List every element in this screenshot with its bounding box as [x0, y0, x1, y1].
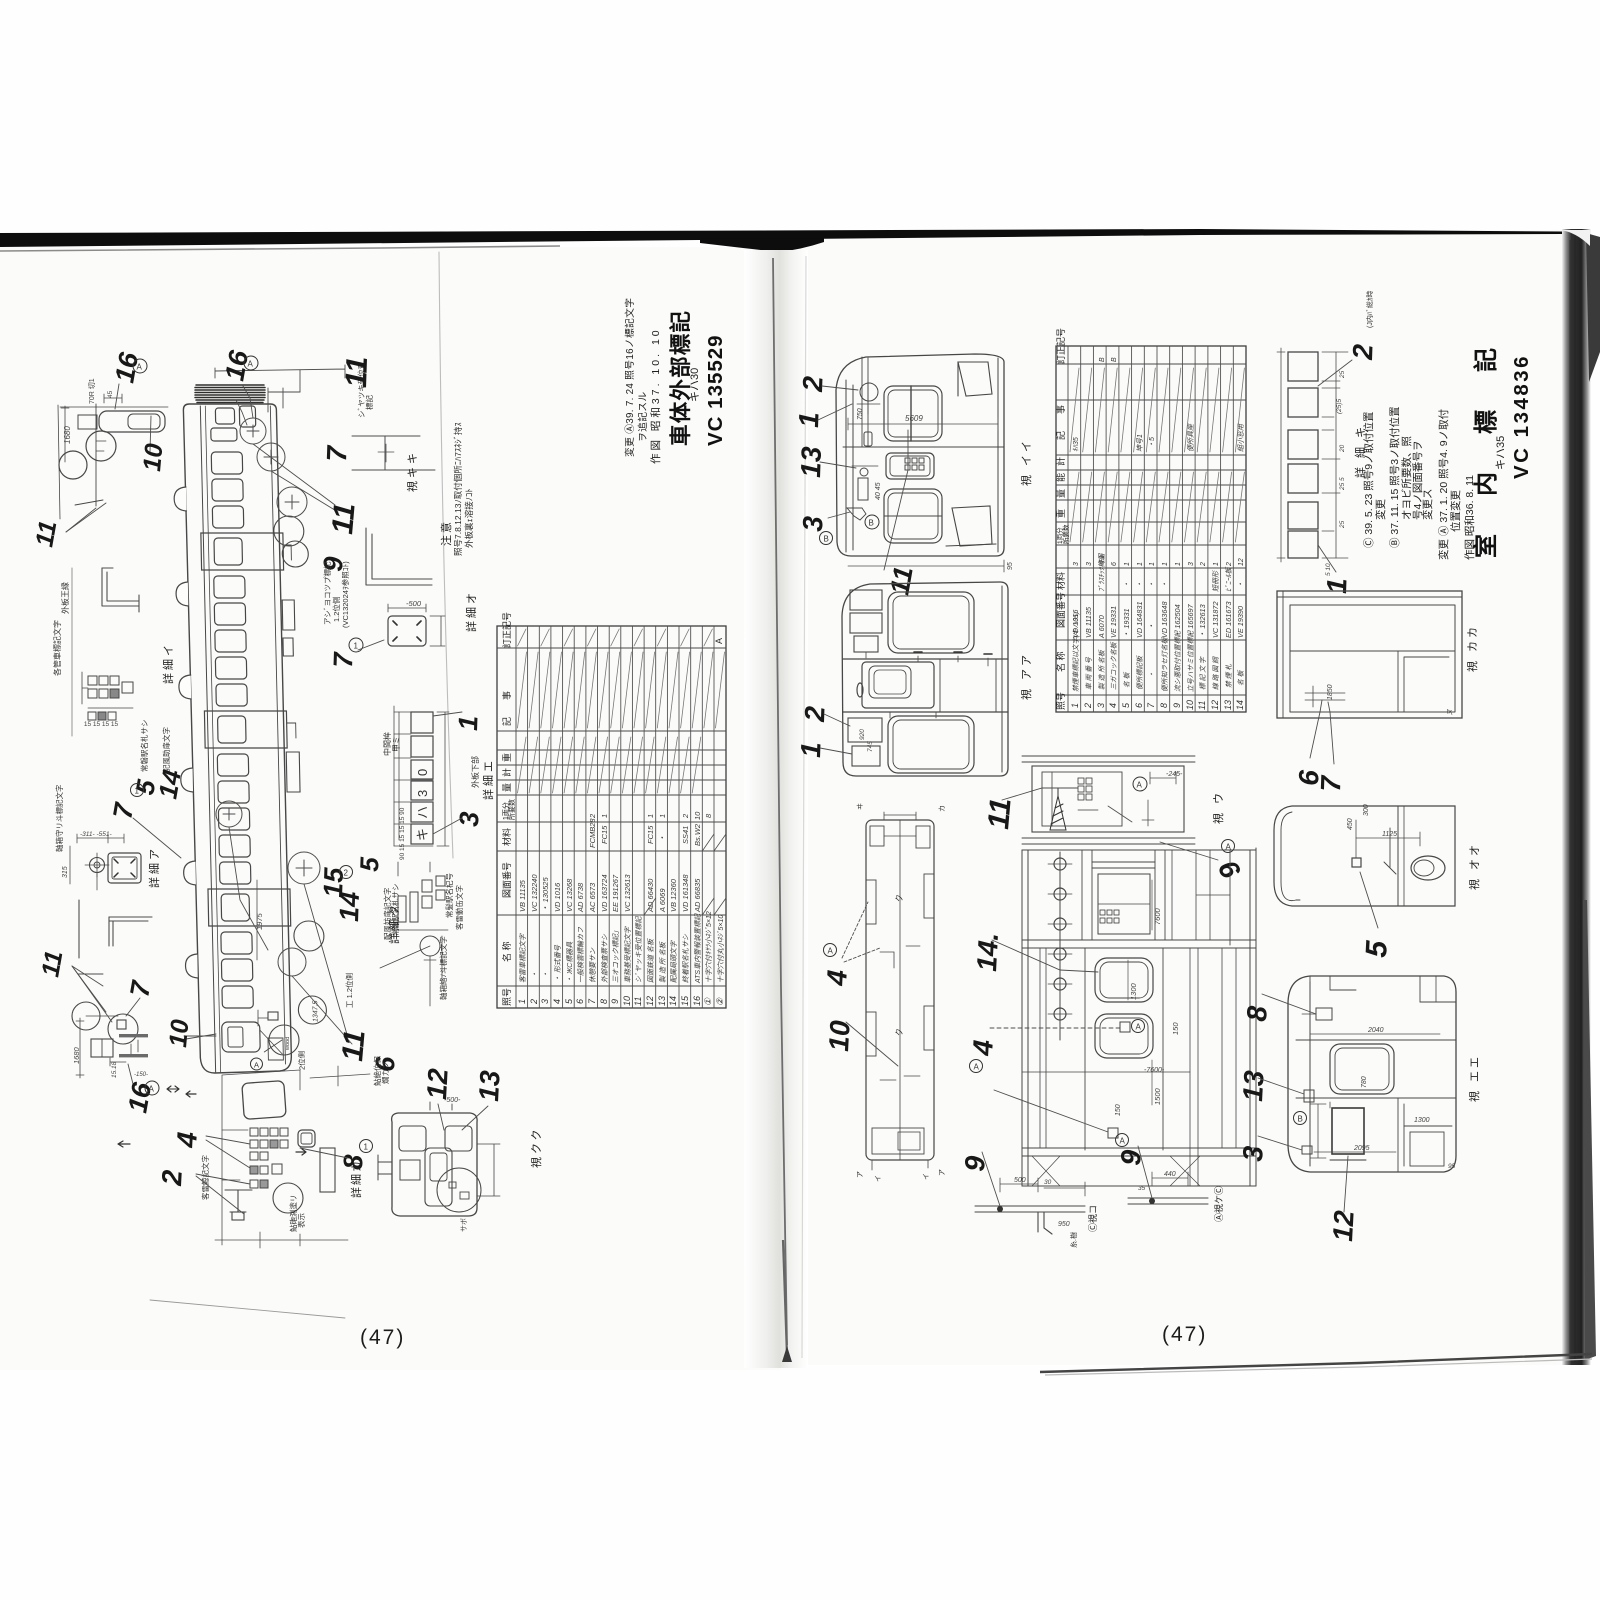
svg-text:A: A	[714, 638, 724, 644]
svg-text:A: A	[974, 1063, 980, 1072]
svg-text:5609: 5609	[905, 414, 923, 423]
svg-text:中間桙: 中間桙	[382, 732, 392, 756]
svg-text:量: 量	[1056, 489, 1066, 498]
svg-text:VB 11135: VB 11135	[1084, 606, 1093, 638]
svg-text:重: 重	[1055, 509, 1066, 518]
svg-text:・: ・	[658, 835, 667, 843]
svg-text:イ: イ	[875, 1175, 882, 1182]
svg-text:・ 形式番号: ・ 形式番号	[554, 944, 562, 982]
svg-text:三オコック標記」: 三オコック標記」	[612, 927, 620, 983]
svg-text:所要数: 所要数	[1061, 524, 1070, 544]
svg-text:・: ・	[1149, 671, 1156, 678]
svg-text:4: 4	[821, 969, 853, 988]
svg-text:記風助扉文字: 記風助扉文字	[161, 727, 171, 772]
svg-text:車務基受標記文字: 車務基受標記文字	[624, 926, 632, 983]
svg-text:7: 7	[321, 444, 353, 462]
svg-text:(J内ﾊﾞ総ｶ時: (J内ﾊﾞ総ｶ時	[1365, 291, 1374, 328]
svg-text:440: 440	[1164, 1171, 1176, 1178]
svg-text:イ: イ	[923, 1173, 930, 1180]
svg-text:13: 13	[1223, 700, 1233, 710]
svg-text:-150-: -150-	[134, 1072, 148, 1078]
svg-text:ﾋﾞﾆｰﾙ板: ﾋﾞﾆｰﾙ板	[1225, 567, 1233, 592]
svg-text:2: 2	[588, 813, 597, 819]
svg-text:・ 19331: ・ 19331	[1122, 608, 1131, 638]
svg-text:VC 135529: VC 135529	[704, 334, 727, 446]
svg-text:②: ②	[715, 997, 725, 1006]
svg-text:2: 2	[1200, 562, 1207, 567]
svg-text:変更ス: 変更ス	[1421, 489, 1434, 521]
svg-text:Ⓐ視ケⒸ: Ⓐ視ケⒸ	[1213, 1186, 1224, 1222]
svg-text:ヌ: ヌ	[1447, 709, 1454, 716]
svg-text:照号7.8.12.13ﾉ取付個所ﾆﾊ7ｽﾈｼﾞ持ｽ: 照号7.8.12.13ﾉ取付個所ﾆﾊ7ｽﾈｼﾞ持ｽ	[453, 422, 463, 556]
svg-text:A: A	[1136, 1023, 1142, 1032]
svg-text:十字穴付ｷｻﾗ小ﾈｼﾞ5×12: 十字穴付ｷｻﾗ小ﾈｼﾞ5×12	[705, 911, 713, 983]
svg-text:客雷鯨記文字: 客雷鯨記文字	[200, 1155, 210, 1200]
svg-text:VE 19331: VE 19331	[1109, 606, 1118, 638]
svg-text:1: 1	[453, 715, 484, 731]
svg-text:14: 14	[668, 996, 678, 1006]
svg-text:3: 3	[1096, 703, 1106, 708]
svg-text:2: 2	[799, 705, 831, 723]
svg-text:アシﾞヨコツプ標記: アシﾞヨコツプ標記	[322, 561, 332, 625]
svg-text:十字穴付丸小ﾈｼﾞ5×10: 十字穴付丸小ﾈｼﾞ5×10	[717, 915, 725, 983]
svg-text:1: 1	[1137, 562, 1144, 566]
svg-text:3: 3	[415, 790, 430, 797]
svg-text:Ⓒ視コ: Ⓒ視コ	[1087, 1205, 1098, 1232]
svg-text:事: 事	[1055, 405, 1066, 414]
svg-text:1: 1	[517, 999, 527, 1004]
svg-text:FCMB28: FCMB28	[588, 818, 597, 848]
svg-text:15: 15	[680, 995, 690, 1006]
svg-text:客雷車標記文字: 客雷車標記文字	[519, 933, 527, 983]
svg-text:軸箱守リ斗標記文字: 軸箱守リ斗標記文字	[54, 785, 64, 853]
svg-text:配属局頭文字: 配属局頭文字	[670, 940, 678, 983]
svg-text:5: 5	[1360, 939, 1394, 959]
svg-text:1975: 1975	[255, 912, 264, 930]
svg-text:訂正記号: 訂正記号	[1055, 328, 1066, 364]
svg-text:表示: 表示	[296, 1213, 306, 1229]
svg-text:ク: ク	[895, 894, 904, 902]
svg-text:745: 745	[867, 741, 874, 752]
svg-text:-7600-: -7600-	[1144, 1067, 1165, 1074]
svg-text:2: 2	[1226, 562, 1233, 567]
svg-text:A: A	[137, 363, 143, 372]
svg-text:FC15: FC15	[600, 825, 609, 844]
svg-text:3: 3	[540, 999, 550, 1004]
svg-text:・ 165697: ・ 165697	[1186, 603, 1195, 638]
svg-text:0: 0	[415, 769, 430, 776]
svg-text:・: ・	[1238, 581, 1245, 588]
svg-text:3: 3	[797, 515, 829, 532]
svg-text:室内標記: 室内標記	[1472, 310, 1500, 558]
svg-text:B: B	[1099, 357, 1106, 362]
svg-text:4: 4	[171, 1131, 203, 1150]
svg-text:(VC132024ｦ参照ｺﾄ): (VC132024ｦ参照ｺﾄ)	[340, 561, 350, 628]
svg-text:重: 重	[501, 753, 512, 762]
svg-text:終着駅名札サシ: 終着駅名札サシ	[682, 933, 690, 983]
svg-text:11: 11	[1197, 701, 1207, 710]
svg-text:ク: ク	[895, 1028, 904, 1036]
svg-text:外板裏ｪ溶接ﾉｺﾄ: 外板裏ｪ溶接ﾉｺﾄ	[464, 488, 474, 548]
svg-text:・: ・	[543, 971, 550, 978]
svg-text:20: 20	[1339, 444, 1346, 453]
svg-text:シﾞヤッキ受位置標記: シﾞヤッキ受位置標記	[635, 916, 643, 983]
svg-text:2: 2	[1083, 703, 1093, 709]
svg-text:・: ・	[1147, 623, 1156, 630]
svg-text:1: 1	[364, 1143, 369, 1152]
svg-text:15.18: 15.18	[111, 1061, 118, 1078]
svg-text:10: 10	[622, 996, 632, 1006]
svg-text:1: 1	[1124, 562, 1131, 566]
svg-text:記: 記	[501, 717, 512, 726]
svg-text:300: 300	[1363, 804, 1370, 816]
svg-text:A: A	[1137, 781, 1143, 790]
svg-text:VC 132240: VC 132240	[530, 874, 539, 912]
svg-text:12: 12	[1210, 700, 1220, 710]
svg-text:750: 750	[857, 408, 864, 420]
svg-text:AD 66835: AD 66835	[693, 878, 702, 913]
svg-text:1125: 1125	[1382, 831, 1397, 838]
svg-text:図面番号: 図面番号	[501, 862, 512, 898]
svg-text:糸.樹: 糸.樹	[1069, 1232, 1078, 1248]
svg-text:1300: 1300	[1129, 982, 1138, 1000]
svg-text:・ 132613: ・ 132613	[1198, 604, 1207, 638]
svg-text:4: 4	[967, 1039, 999, 1058]
svg-text:変更 Ⓐ39. 7. 24 照号16ノ標記文字: 変更 Ⓐ39. 7. 24 照号16ノ標記文字	[623, 298, 636, 457]
svg-text:2位側: 2位側	[296, 1051, 306, 1070]
svg-text:500: 500	[1014, 1177, 1026, 1184]
svg-text:90 15 15 15 15 90: 90 15 15 15 15 90	[399, 807, 406, 860]
svg-text:12: 12	[1238, 558, 1245, 566]
svg-text:AD 66430: AD 66430	[646, 878, 655, 913]
svg-text:VC 132613: VC 132613	[623, 874, 632, 912]
svg-text:9: 9	[1172, 703, 1182, 708]
svg-text:VD 1016: VD 1016	[553, 882, 562, 912]
svg-text:視 ウ: 視 ウ	[1211, 790, 1225, 824]
svg-text:便所知ラセ灯名板: 便所知ラセ灯名板	[1161, 636, 1169, 692]
svg-text:7: 7	[1315, 774, 1347, 792]
svg-text:11: 11	[340, 356, 374, 388]
svg-text:1300: 1300	[1414, 1117, 1430, 1124]
svg-text:照号: 照号	[1056, 692, 1066, 710]
svg-text:A: A	[149, 1085, 155, 1094]
svg-text:1: 1	[646, 814, 655, 818]
svg-text:10: 10	[823, 1019, 856, 1052]
svg-text:VD 164831: VD 164831	[1135, 601, 1144, 638]
svg-text:A: A	[828, 947, 834, 956]
svg-text:図面鉄道 名板: 図面鉄道 名板	[647, 938, 655, 983]
svg-text:95: 95	[1448, 1163, 1456, 1170]
svg-text:詳細ク: 詳細ク	[387, 902, 401, 944]
svg-text:14: 14	[152, 767, 187, 801]
svg-text:2: 2	[344, 869, 349, 878]
svg-text:15 15 15 15: 15 15 15 15	[84, 721, 119, 728]
svg-text:記: 記	[1055, 431, 1066, 440]
svg-text:-245-: -245-	[1166, 771, 1183, 778]
svg-text:・: ・	[532, 971, 539, 978]
svg-text:ヰ: ヰ	[856, 803, 864, 810]
svg-text:EE 191267: EE 191267	[611, 874, 620, 912]
svg-text:計: 計	[1055, 457, 1066, 466]
svg-text:変更: 変更	[1374, 499, 1387, 520]
svg-text:図面番号: 図面番号	[1055, 592, 1066, 628]
svg-text:11: 11	[336, 1029, 372, 1063]
svg-text:9: 9	[1115, 1149, 1147, 1167]
svg-text:3: 3	[454, 811, 485, 827]
svg-text:25: 25	[1339, 370, 1346, 379]
svg-text:10: 10	[164, 1018, 194, 1048]
svg-text:客雷動缶文字: 客雷動缶文字	[454, 885, 464, 930]
svg-text:Bs.W2: Bs.W2	[693, 823, 702, 846]
svg-text:3: 3	[1237, 1145, 1269, 1163]
svg-text:詳細エ: 詳細エ	[481, 758, 495, 800]
svg-text:2095: 2095	[1353, 1145, 1370, 1152]
svg-text:2: 2	[529, 999, 539, 1005]
svg-text:14: 14	[1235, 700, 1245, 710]
svg-text:6: 6	[575, 999, 585, 1004]
svg-text:VC 134836: VC 134836	[1510, 354, 1533, 479]
svg-text:13: 13	[795, 446, 827, 479]
svg-text:8: 8	[1159, 703, 1169, 708]
svg-text:・5: ・5	[1149, 437, 1156, 448]
svg-text:70R 切1: 70R 切1	[88, 378, 96, 404]
svg-text:視 カカ: 視 カカ	[1465, 624, 1479, 672]
svg-text:(47): (47)	[360, 1326, 405, 1349]
svg-text:1500: 1500	[1153, 1087, 1162, 1105]
svg-text:材料: 材料	[1055, 572, 1066, 590]
svg-text:2040: 2040	[1367, 1027, 1384, 1034]
svg-text:作図 昭和37. 10. 10: 作図 昭和37. 10. 10	[650, 327, 662, 464]
svg-text:Ⓒ 39. 5. 23 照号9ノ取付位置: Ⓒ 39. 5. 23 照号9ノ取付位置	[1362, 411, 1375, 548]
svg-text:坤号1: 坤号1	[1136, 434, 1144, 452]
svg-text:標 記 文 字: 標 記 文 字	[1199, 656, 1207, 690]
svg-text:カ: カ	[938, 805, 946, 812]
svg-text:11: 11	[633, 997, 643, 1006]
svg-text:(25)5: (25)5	[1336, 398, 1343, 414]
svg-text:6: 6	[1111, 562, 1118, 566]
svg-text:材料: 材料	[501, 828, 512, 846]
svg-text:AD 6738: AD 6738	[576, 882, 585, 913]
svg-text:1: 1	[1162, 562, 1169, 566]
svg-text:位置変更: 位置変更	[1449, 490, 1462, 532]
svg-text:B: B	[824, 535, 829, 544]
svg-text:1.2位側: 1.2位側	[331, 597, 341, 622]
svg-text:視クク: 視クク	[529, 1126, 543, 1168]
svg-text:11: 11	[36, 949, 68, 979]
svg-text:名 板: 名 板	[1237, 669, 1245, 686]
svg-text:ア: ア	[856, 1171, 864, 1178]
svg-text:10: 10	[693, 811, 702, 820]
svg-text:2: 2	[156, 1169, 188, 1188]
svg-text:11: 11	[30, 519, 62, 549]
svg-text:詳細カ: 詳細カ	[349, 1159, 363, 1198]
svg-text:14: 14	[334, 891, 365, 922]
svg-text:VD 163724: VD 163724	[600, 874, 609, 912]
svg-text:4: 4	[1108, 703, 1118, 708]
svg-text:・: ・	[1162, 581, 1169, 588]
svg-text:能: 能	[1055, 473, 1066, 482]
svg-text:25: 25	[1339, 520, 1346, 529]
svg-text:1680: 1680	[63, 426, 72, 444]
svg-text:キ: キ	[415, 828, 430, 841]
svg-text:一般検雲標輪カフ: 一般検雲標輪カフ	[577, 926, 585, 983]
svg-text:各管車標記文字: 各管車標記文字	[52, 620, 62, 676]
svg-text:視キキ: 視キキ	[405, 450, 419, 492]
svg-text:AC 6573: AC 6573	[588, 882, 597, 913]
svg-text:920: 920	[859, 729, 866, 740]
svg-text:3: 3	[1188, 562, 1195, 566]
svg-text:名 板: 名 板	[1123, 671, 1131, 688]
svg-text:・: ・	[1149, 581, 1156, 588]
svg-text:VD 163648: VD 163648	[1160, 601, 1169, 638]
svg-text:ATS車内警報装置標記: ATS車内警報装置標記	[694, 913, 702, 984]
svg-text:VB 12360: VB 12360	[669, 878, 678, 912]
svg-text:VC 131872: VC 131872	[1211, 601, 1220, 638]
svg-text:16: 16	[692, 996, 702, 1006]
svg-text:①: ①	[703, 997, 713, 1006]
svg-text:1: 1	[354, 642, 359, 651]
svg-text:計: 計	[501, 768, 512, 777]
svg-text:工 1.2位側: 工 1.2位側	[344, 973, 354, 1008]
svg-text:SS41: SS41	[681, 826, 690, 844]
svg-text:・ ЖС標器具: ・ ЖС標器具	[566, 941, 574, 983]
svg-text:1: 1	[658, 814, 667, 818]
svg-text:1: 1	[795, 742, 827, 759]
svg-text:3: 3	[1073, 562, 1080, 566]
svg-text:10: 10	[138, 442, 168, 472]
svg-text:・: ・	[1137, 581, 1144, 588]
svg-text:A: A	[1120, 1137, 1126, 1146]
svg-text:8: 8	[599, 999, 609, 1004]
svg-text:A 6069: A 6069	[658, 888, 667, 913]
svg-text:35: 35	[1138, 1185, 1146, 1192]
svg-text:1: 1	[1175, 562, 1182, 566]
svg-text:変更 Ⓐ 37. 1. 20 照号4. 9ノ取付: 変更 Ⓐ 37. 1. 20 照号4. 9ノ取付	[1437, 409, 1450, 560]
svg-text:VB 11135: VB 11135	[518, 879, 527, 912]
svg-text:B: B	[1111, 357, 1118, 362]
svg-text:視 オオ: 視 オオ	[1467, 842, 1481, 890]
svg-text:車 両 番 号: 車 両 番 号	[1085, 656, 1093, 690]
svg-text:常髪駅名杞号: 常髪駅名杞号	[444, 873, 454, 918]
svg-text:外板下部: 外板下部	[470, 756, 480, 788]
svg-text:便所具座: 便所具座	[1187, 423, 1195, 452]
svg-text:サボ: サボ	[460, 1218, 468, 1232]
svg-text:780: 780	[1361, 1076, 1368, 1088]
svg-text:45: 45	[107, 390, 114, 398]
svg-text:8: 8	[1241, 1005, 1273, 1023]
svg-text:-311- -551-: -311- -551-	[80, 831, 113, 838]
svg-text:95: 95	[1007, 562, 1014, 570]
svg-text:4: 4	[552, 999, 562, 1004]
svg-text:11: 11	[982, 797, 1018, 831]
svg-text:1680: 1680	[72, 1046, 81, 1064]
svg-text:製 造 所 名板: 製 造 所 名板	[659, 941, 667, 983]
svg-text:注意: 注意	[439, 520, 453, 546]
svg-text:40 45: 40 45	[875, 482, 882, 500]
svg-text:13: 13	[1237, 1069, 1270, 1102]
svg-text:・ 162504: ・ 162504	[1173, 604, 1182, 638]
svg-text:VD 161348: VD 161348	[681, 874, 690, 912]
svg-text:450: 450	[1347, 818, 1354, 830]
svg-text:視 アア: 視 アア	[1019, 652, 1033, 700]
svg-text:VC 13268: VC 13268	[565, 878, 574, 912]
svg-text:2: 2	[1347, 343, 1379, 361]
svg-text:13: 13	[473, 1069, 506, 1102]
svg-text:12: 12	[645, 996, 655, 1006]
svg-text:・: ・	[1124, 581, 1131, 588]
svg-text:訂正記号: 訂正記号	[501, 612, 512, 648]
svg-text:量: 量	[502, 783, 512, 792]
svg-text:ED 161673: ED 161673	[1224, 601, 1233, 638]
svg-text:2: 2	[681, 813, 690, 819]
svg-text:30: 30	[1044, 1179, 1052, 1186]
svg-text:wood: wood	[285, 1037, 291, 1051]
svg-text:25 5: 25 5	[1339, 477, 1346, 491]
svg-text:ア: ア	[938, 1169, 946, 1176]
svg-text:詳細オ: 詳細オ	[464, 590, 478, 632]
svg-text:6: 6	[1134, 703, 1144, 708]
svg-text:常磐駅名札サシ: 常磐駅名札サシ	[139, 720, 149, 773]
svg-text:・ 130525: ・ 130525	[541, 877, 550, 912]
svg-text:ヲ追記スル: ヲ追記スル	[636, 392, 649, 442]
svg-text:(47): (47)	[1162, 1323, 1207, 1346]
svg-text:軸箱絡ﾉ斗標記文字: 軸箱絡ﾉ斗標記文字	[438, 936, 448, 1000]
svg-text:燗カフ: 燗カフ	[380, 1062, 390, 1085]
svg-text:315: 315	[62, 866, 69, 878]
svg-text:-500: -500	[406, 599, 422, 608]
svg-text:950: 950	[1058, 1221, 1070, 1228]
svg-text:視 イイ: 視 イイ	[1019, 438, 1033, 486]
svg-text:150: 150	[1171, 1022, 1180, 1035]
svg-text:FC15: FC15	[646, 825, 655, 844]
svg-text:150: 150	[1115, 1104, 1122, 1116]
svg-text:禁 煙 札: 禁 煙 札	[1225, 664, 1233, 688]
svg-text:外板王縁: 外板王縁	[60, 582, 70, 614]
svg-text:5: 5	[354, 856, 385, 872]
svg-text:VE 19390: VE 19390	[1236, 606, 1245, 638]
svg-text:3: 3	[1086, 562, 1093, 566]
svg-text:三ガコック名板: 三ガコック名板	[1110, 641, 1118, 690]
svg-text:製 造 所 名板: 製 造 所 名板	[1098, 649, 1106, 690]
svg-text:VD 1016: VD 1016	[1071, 609, 1080, 638]
svg-text:12: 12	[1327, 1209, 1360, 1242]
svg-text:線 路 図 鋼: 線 路 図 鋼	[1212, 656, 1220, 690]
svg-text:キハ30: キハ30	[689, 368, 701, 402]
svg-text:7600: 7600	[1153, 907, 1162, 925]
svg-text:A: A	[254, 1061, 259, 1070]
svg-text:1: 1	[135, 787, 140, 796]
svg-text:1: 1	[793, 412, 825, 429]
svg-text:B: B	[869, 519, 874, 528]
svg-text:1: 1	[1070, 703, 1080, 708]
svg-text:キ1: キ1	[1098, 555, 1106, 566]
svg-text:標記: 標記	[364, 395, 374, 410]
svg-text:ｷﾊ35: ｷﾊ35	[1072, 437, 1080, 452]
svg-text:詳細イ: 詳細イ	[161, 642, 175, 684]
svg-text:A 6070: A 6070	[1097, 615, 1106, 639]
svg-text:A: A	[248, 360, 254, 369]
svg-text:11: 11	[326, 502, 362, 536]
svg-text:外部検査票サシ: 外部検査票サシ	[601, 933, 609, 983]
svg-text:名 称: 名 称	[1055, 651, 1066, 672]
svg-text:13: 13	[657, 996, 667, 1006]
svg-text:1: 1	[1213, 562, 1220, 566]
svg-text:Ⓑ 37. 11. 15 照号3ノ取付位置: Ⓑ 37. 11. 15 照号3ノ取付位置	[1388, 406, 1401, 548]
svg-text:短冊形: 短冊形	[1212, 570, 1220, 592]
svg-text:ハ: ハ	[415, 806, 430, 819]
svg-text:1: 1	[1149, 562, 1156, 566]
svg-text:12: 12	[421, 1067, 454, 1100]
